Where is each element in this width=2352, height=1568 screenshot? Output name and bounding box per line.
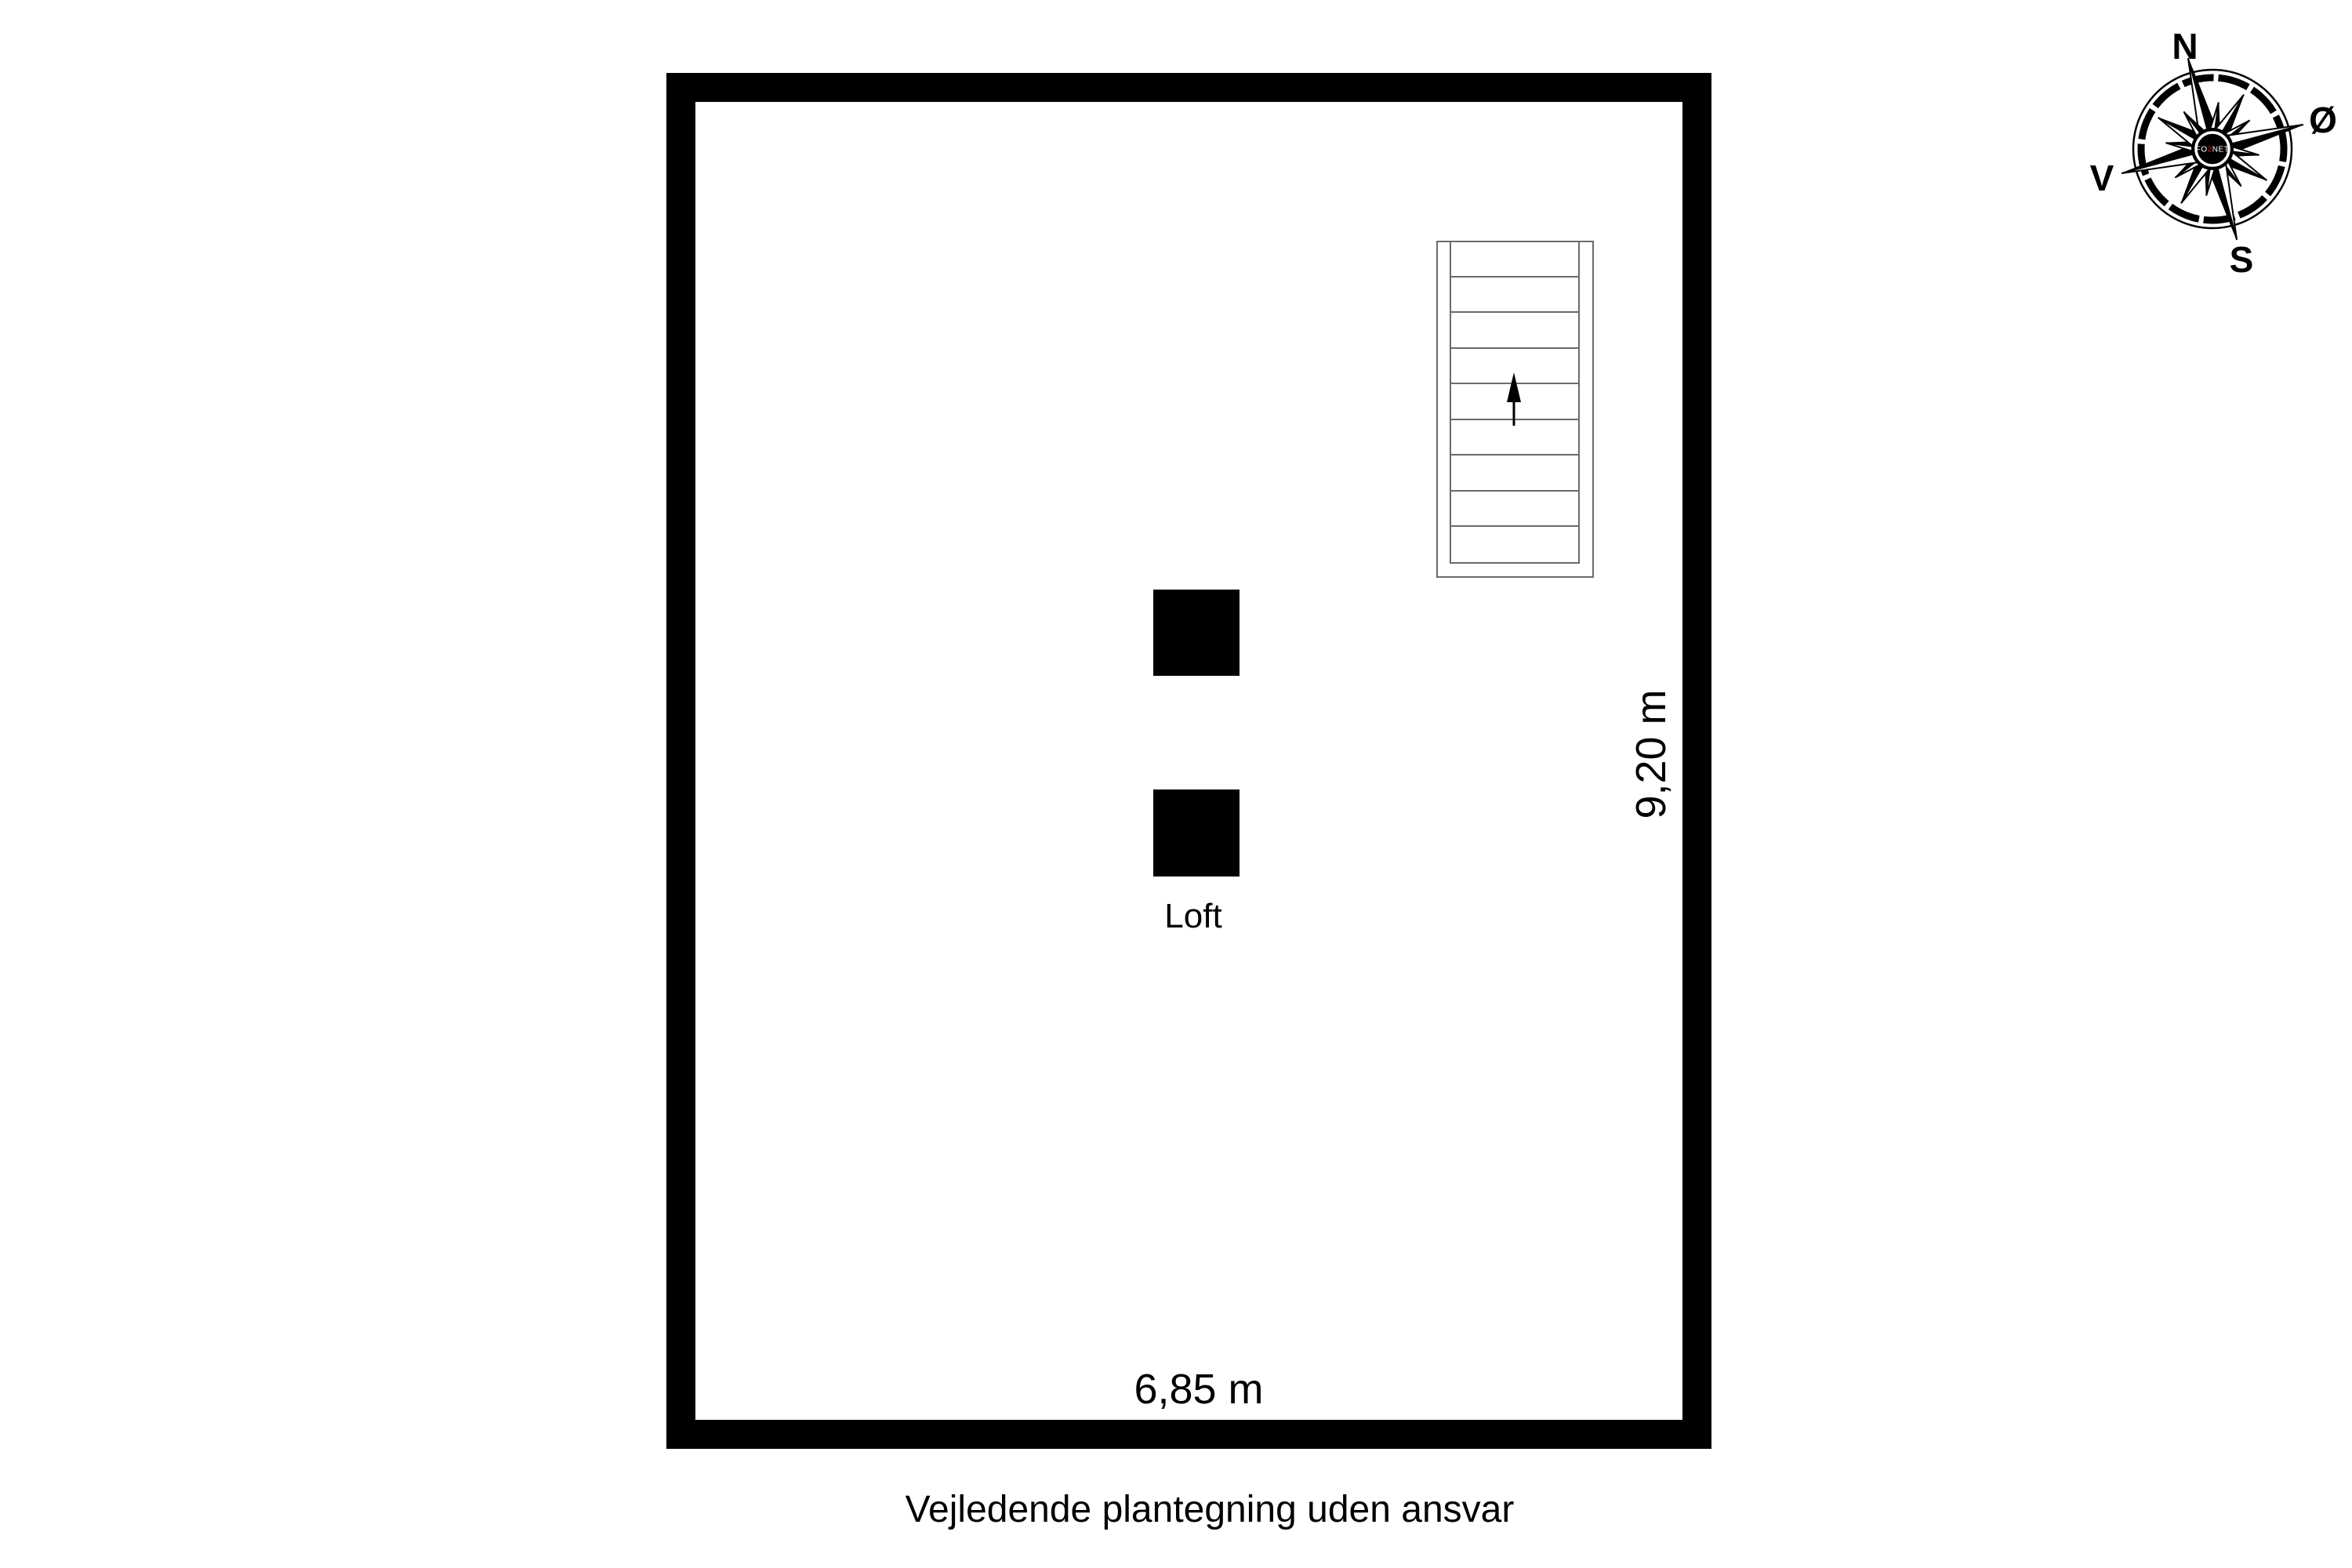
chimney-block-top bbox=[1153, 590, 1240, 676]
disclaimer-text: Vejledende plantegning uden ansvar bbox=[666, 1488, 1753, 1532]
width-dimension-label: 6,85 m bbox=[1081, 1366, 1316, 1413]
compass-label-south: S bbox=[2230, 239, 2254, 280]
compass-label-north: N bbox=[2172, 26, 2198, 67]
chimney-block-bottom bbox=[1153, 789, 1240, 877]
staircase bbox=[1436, 241, 1594, 578]
compass-label-east: Ø bbox=[2309, 100, 2337, 140]
room-label: Loft bbox=[1076, 897, 1311, 936]
compass-rose: FO2NET N Ø S V bbox=[2056, 0, 2352, 298]
floor-plan-canvas: Loft 6,85 m 9,20 m Vejledende plantegnin… bbox=[0, 0, 2352, 1568]
compass-watermark: FO2NET bbox=[2196, 146, 2229, 154]
compass-label-west: V bbox=[2090, 158, 2114, 198]
stairs-direction-arrow bbox=[1436, 241, 1594, 578]
height-dimension-label: 9,20 m bbox=[1628, 637, 1675, 872]
